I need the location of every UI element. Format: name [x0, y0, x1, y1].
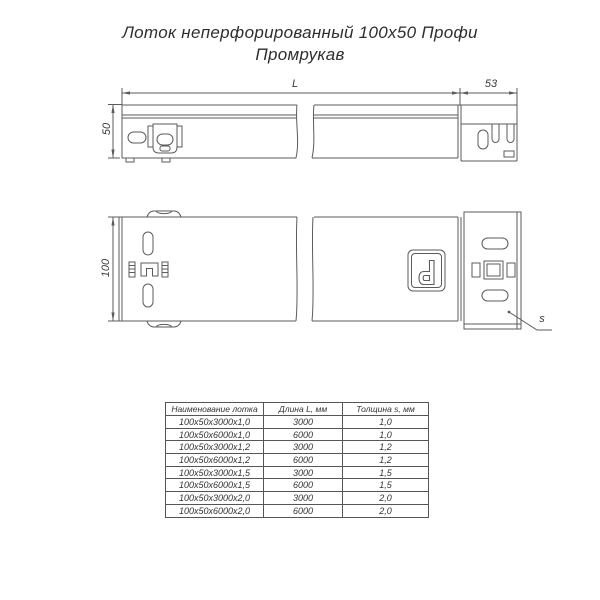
table-cell: 6000: [264, 428, 343, 441]
connector-plate-top: [464, 212, 521, 329]
break-line: [312, 105, 314, 158]
break-line: [296, 217, 297, 321]
title-line-2: Промрукав: [0, 44, 600, 66]
drawing-sheet: Лоток неперфорированный 100х50 Профи Про…: [0, 0, 600, 600]
table-cell: 100х50х3000х1,2: [166, 441, 264, 454]
slot-rect: [507, 263, 515, 277]
table-row: 100х50х3000х2,030002,0: [166, 492, 429, 505]
dim-label-53: 53: [481, 78, 501, 90]
table-cell: 1,5: [343, 466, 429, 479]
table-cell: 1,2: [343, 441, 429, 454]
table-cell: 100х50х6000х1,0: [166, 428, 264, 441]
table-row: 100х50х3000х1,030001,0: [166, 416, 429, 429]
table-cell: 6000: [264, 504, 343, 517]
slot-oval: [143, 232, 153, 255]
dim-label-50: 50: [101, 118, 113, 140]
length-dimension: [122, 88, 517, 105]
slot-oval: [128, 132, 146, 143]
mounting-foot: [126, 158, 134, 162]
square-hole: [487, 264, 500, 276]
table-cell: 100х50х6000х1,2: [166, 454, 264, 467]
table-row: 100х50х6000х1,260001,2: [166, 454, 429, 467]
top-view-drawing: [100, 195, 560, 345]
spec-table-header: Наименование лотка Длина L, мм Толщина s…: [166, 403, 429, 416]
table-row: 100х50х6000х2,060002,0: [166, 504, 429, 517]
table-cell: 3000: [264, 466, 343, 479]
spec-table-body: 100х50х3000х1,030001,0100х50х6000х1,0600…: [166, 416, 429, 518]
promrukav-logo: [408, 250, 445, 291]
table-cell: 100х50х3000х2,0: [166, 492, 264, 505]
table-row: 100х50х6000х1,060001,0: [166, 428, 429, 441]
slot-oval: [482, 290, 508, 301]
table-row: 100х50х6000х1,560001,5: [166, 479, 429, 492]
mounting-foot: [162, 158, 170, 162]
tray-body-side: [122, 105, 517, 162]
table-cell: 1,0: [343, 416, 429, 429]
table-cell: 2,0: [343, 492, 429, 505]
dim-label-s: s: [536, 313, 548, 325]
slot-rect: [504, 151, 514, 157]
table-cell: 1,2: [343, 454, 429, 467]
title-line-1: Лоток неперфорированный 100х50 Профи: [0, 22, 600, 44]
break-line: [312, 217, 313, 321]
slot-rect: [472, 263, 480, 277]
table-cell: 3000: [264, 441, 343, 454]
dim-label-100: 100: [100, 254, 112, 282]
table-cell: 6000: [264, 454, 343, 467]
table-cell: 2,0: [343, 504, 429, 517]
spec-table: Наименование лотка Длина L, мм Толщина s…: [165, 402, 429, 518]
table-cell: 3000: [264, 416, 343, 429]
table-cell: 3000: [264, 492, 343, 505]
dim-label-length: L: [288, 78, 302, 90]
table-cell: 1,0: [343, 428, 429, 441]
header-name: Наименование лотка: [166, 403, 264, 416]
table-row: 100х50х3000х1,530001,5: [166, 466, 429, 479]
latch-detail-side: [128, 124, 182, 153]
page-title: Лоток неперфорированный 100х50 Профи Про…: [0, 22, 600, 66]
table-cell: 100х50х6000х1,5: [166, 479, 264, 492]
left-end-holes: [129, 232, 168, 307]
connector-notch: [492, 124, 499, 143]
bracket-cutout: [141, 263, 158, 276]
header-thickness: Толщина s, мм: [343, 403, 429, 416]
header-row: Наименование лотка Длина L, мм Толщина s…: [166, 403, 429, 416]
table-cell: 100х50х3000х1,5: [166, 466, 264, 479]
slot-oval: [482, 238, 508, 249]
connector-notch: [507, 124, 514, 143]
header-length: Длина L, мм: [264, 403, 343, 416]
connector-end-side: [461, 105, 517, 161]
table-cell: 100х50х6000х2,0: [166, 504, 264, 517]
slot-oval: [478, 130, 488, 149]
table-row: 100х50х3000х1,230001,2: [166, 441, 429, 454]
table-cell: 100х50х3000х1,0: [166, 416, 264, 429]
tray-body-top: [119, 211, 461, 327]
table-cell: 1,5: [343, 479, 429, 492]
slot-oval: [143, 284, 153, 307]
table-cell: 6000: [264, 479, 343, 492]
break-line: [296, 105, 298, 158]
side-view-drawing: [100, 80, 545, 175]
